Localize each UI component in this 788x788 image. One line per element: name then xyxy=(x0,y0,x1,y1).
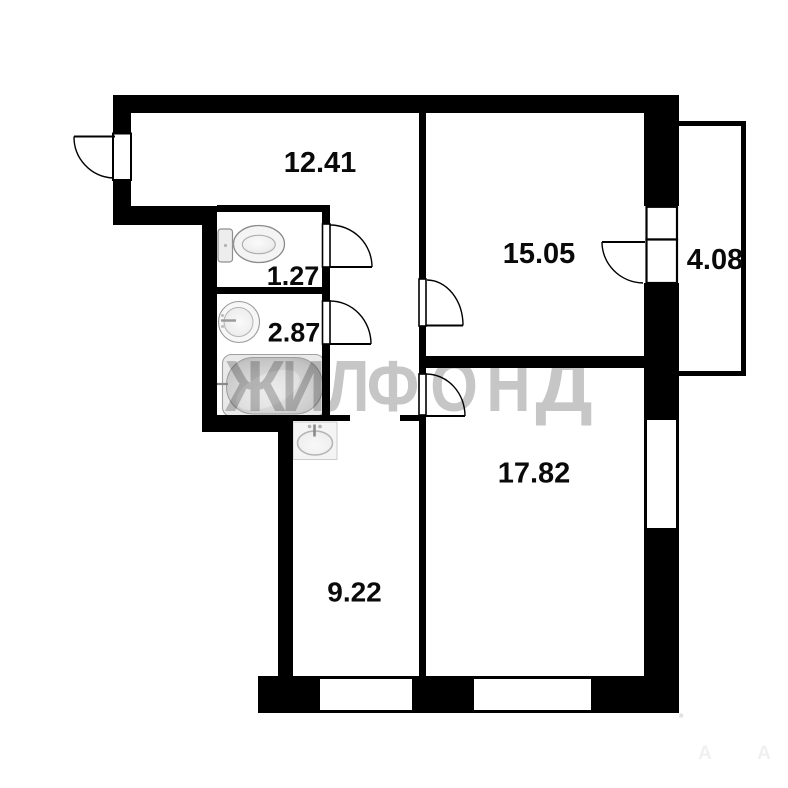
svg-text:17.82: 17.82 xyxy=(498,458,571,490)
svg-text:15.05: 15.05 xyxy=(503,238,576,270)
svg-text:А: А xyxy=(757,743,771,764)
svg-text:12.41: 12.41 xyxy=(284,147,357,179)
svg-text:9.22: 9.22 xyxy=(327,577,382,608)
svg-text:А: А xyxy=(698,743,712,764)
svg-text:4.08: 4.08 xyxy=(687,244,743,276)
svg-text:2.87: 2.87 xyxy=(268,318,321,348)
svg-text:Ж: Ж xyxy=(224,345,285,426)
svg-text:1.27: 1.27 xyxy=(267,261,320,291)
